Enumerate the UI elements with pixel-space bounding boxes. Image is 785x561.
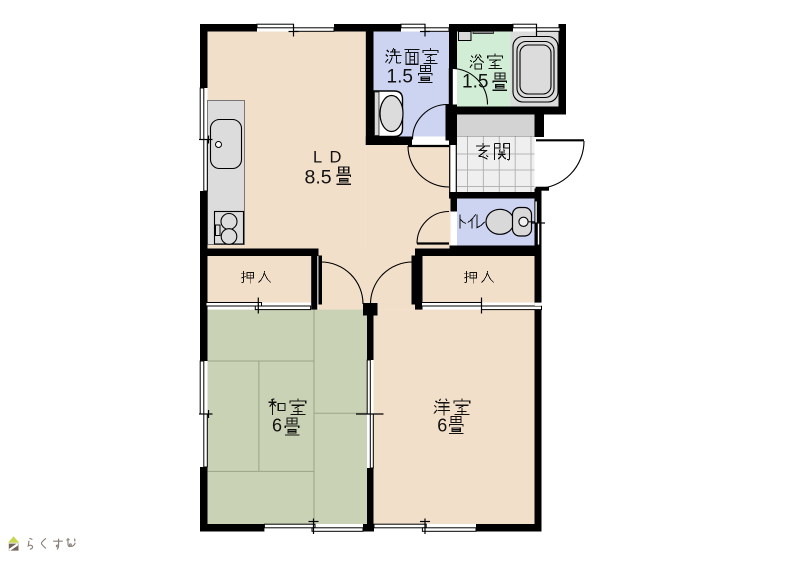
svg-text:L: L: [313, 149, 322, 167]
svg-text:6: 6: [437, 416, 447, 436]
svg-text:6: 6: [272, 416, 282, 436]
svg-text:D: D: [330, 149, 342, 167]
svg-text:1.5: 1.5: [462, 72, 488, 93]
svg-text:1.5: 1.5: [387, 67, 413, 88]
svg-text:8.5: 8.5: [305, 167, 332, 189]
